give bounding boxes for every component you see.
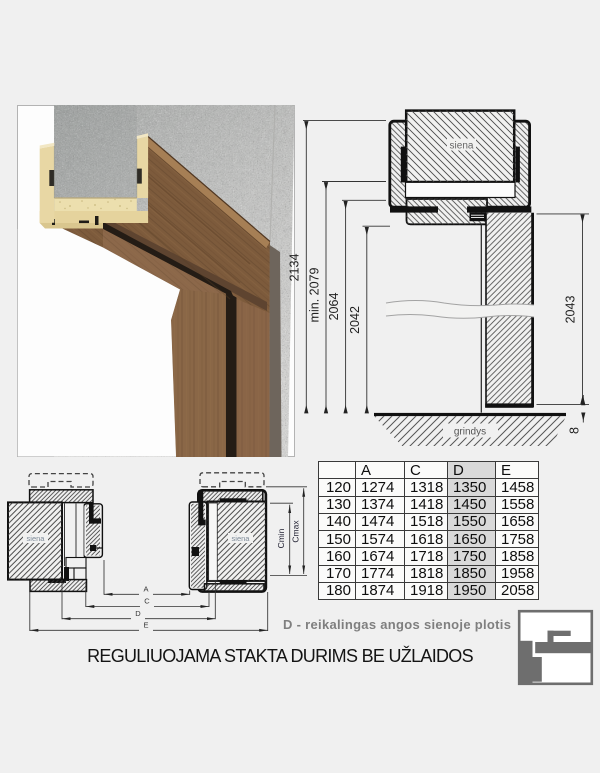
svg-text:8: 8 <box>568 427 582 434</box>
svg-text:2134: 2134 <box>288 254 302 282</box>
svg-text:E: E <box>143 621 148 630</box>
svg-text:2043: 2043 <box>564 296 578 324</box>
svg-text:min. 2079: min. 2079 <box>308 268 322 323</box>
svg-text:A: A <box>143 584 148 593</box>
svg-text:Cmax: Cmax <box>290 520 300 543</box>
svg-text:grindys: grindys <box>454 427 486 438</box>
svg-text:D: D <box>135 609 141 618</box>
svg-text:siena: siena <box>27 534 46 543</box>
svg-text:Cmin: Cmin <box>276 528 286 548</box>
svg-text:2064: 2064 <box>327 293 341 321</box>
svg-text:siena: siena <box>450 141 474 152</box>
svg-text:C: C <box>144 597 150 606</box>
svg-text:siena: siena <box>232 534 251 543</box>
svg-text:2042: 2042 <box>348 306 362 334</box>
